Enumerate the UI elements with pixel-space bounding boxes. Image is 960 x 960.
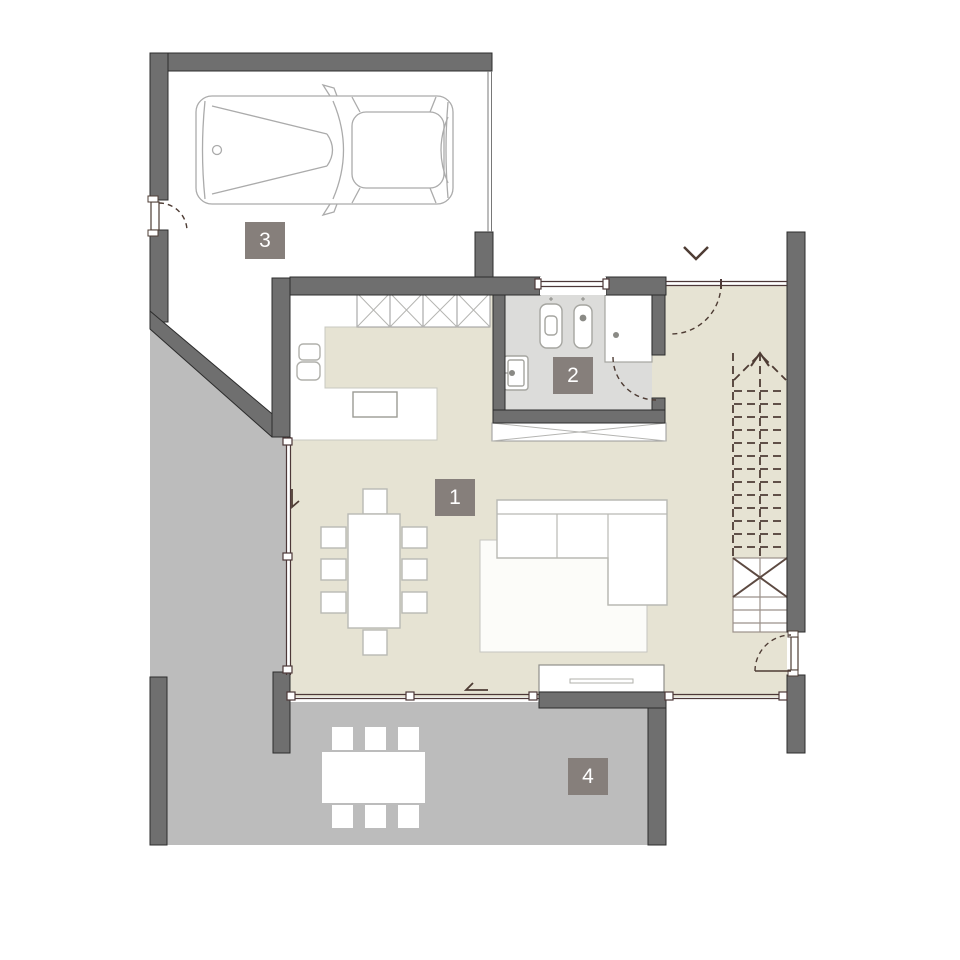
terrace-left-post	[150, 677, 167, 845]
terrace-chair	[332, 805, 353, 828]
garage-carport-edge	[488, 71, 492, 232]
terrace-chair	[398, 805, 419, 828]
shower-drain	[613, 332, 619, 338]
washbasin	[503, 356, 528, 390]
room-badge-bathroom: 2	[553, 357, 593, 394]
shower	[605, 295, 652, 362]
house-top-wall-right	[606, 277, 666, 295]
room-badge-living: 1	[435, 479, 475, 516]
dining-chair	[321, 559, 346, 580]
west-post	[273, 672, 290, 753]
bathroom-right-wall-upper	[652, 295, 665, 355]
bathroom-left-wall	[493, 295, 505, 423]
east-wall-upper	[787, 232, 805, 632]
terrace-chair	[398, 727, 419, 750]
dining-table	[348, 514, 400, 628]
entry-chevron-arrow	[684, 247, 708, 259]
room-badge-terrace: 4	[568, 758, 608, 795]
floor-plan: 1 2 3 4	[0, 0, 960, 960]
stairs-lower-flight	[733, 558, 787, 632]
east-wall-lower	[787, 675, 805, 753]
terrace-chair	[332, 727, 353, 750]
terrace-chair	[365, 805, 386, 828]
terrace-wall-vertical	[648, 708, 666, 845]
bathroom-bottom-wall	[493, 410, 665, 423]
wardrobe-crossed	[492, 423, 666, 441]
dining-chair	[363, 489, 387, 514]
room-badge-garage: 3	[245, 222, 285, 259]
tall-cabinets	[357, 293, 490, 327]
terrace-table	[322, 752, 425, 803]
dining-chair	[363, 630, 387, 655]
toilet	[540, 297, 562, 348]
terrace-dining-set	[322, 727, 425, 828]
house-top-wall-left	[290, 277, 540, 295]
garage-left-wall-upper	[150, 53, 168, 200]
sideboard	[539, 665, 664, 692]
cooktop-item-2	[297, 362, 320, 380]
dining-chair	[402, 559, 427, 580]
dining-chair	[321, 527, 346, 548]
terrace-wall-horizontal	[539, 692, 666, 708]
dining-chair	[321, 592, 346, 613]
floors	[150, 286, 787, 845]
dining-chair	[402, 527, 427, 548]
dining-chair	[402, 592, 427, 613]
sofa-area	[480, 500, 667, 652]
floor-plan-drawing	[0, 0, 960, 960]
kitchen-west-wall	[272, 278, 290, 437]
car-top-view	[196, 85, 453, 215]
cooktop-item-1	[299, 344, 320, 360]
garage-left-wall-lower	[150, 230, 168, 322]
garage-top-wall	[150, 53, 492, 71]
kitchen-island-sink	[353, 392, 397, 417]
terrace-chair	[365, 727, 386, 750]
